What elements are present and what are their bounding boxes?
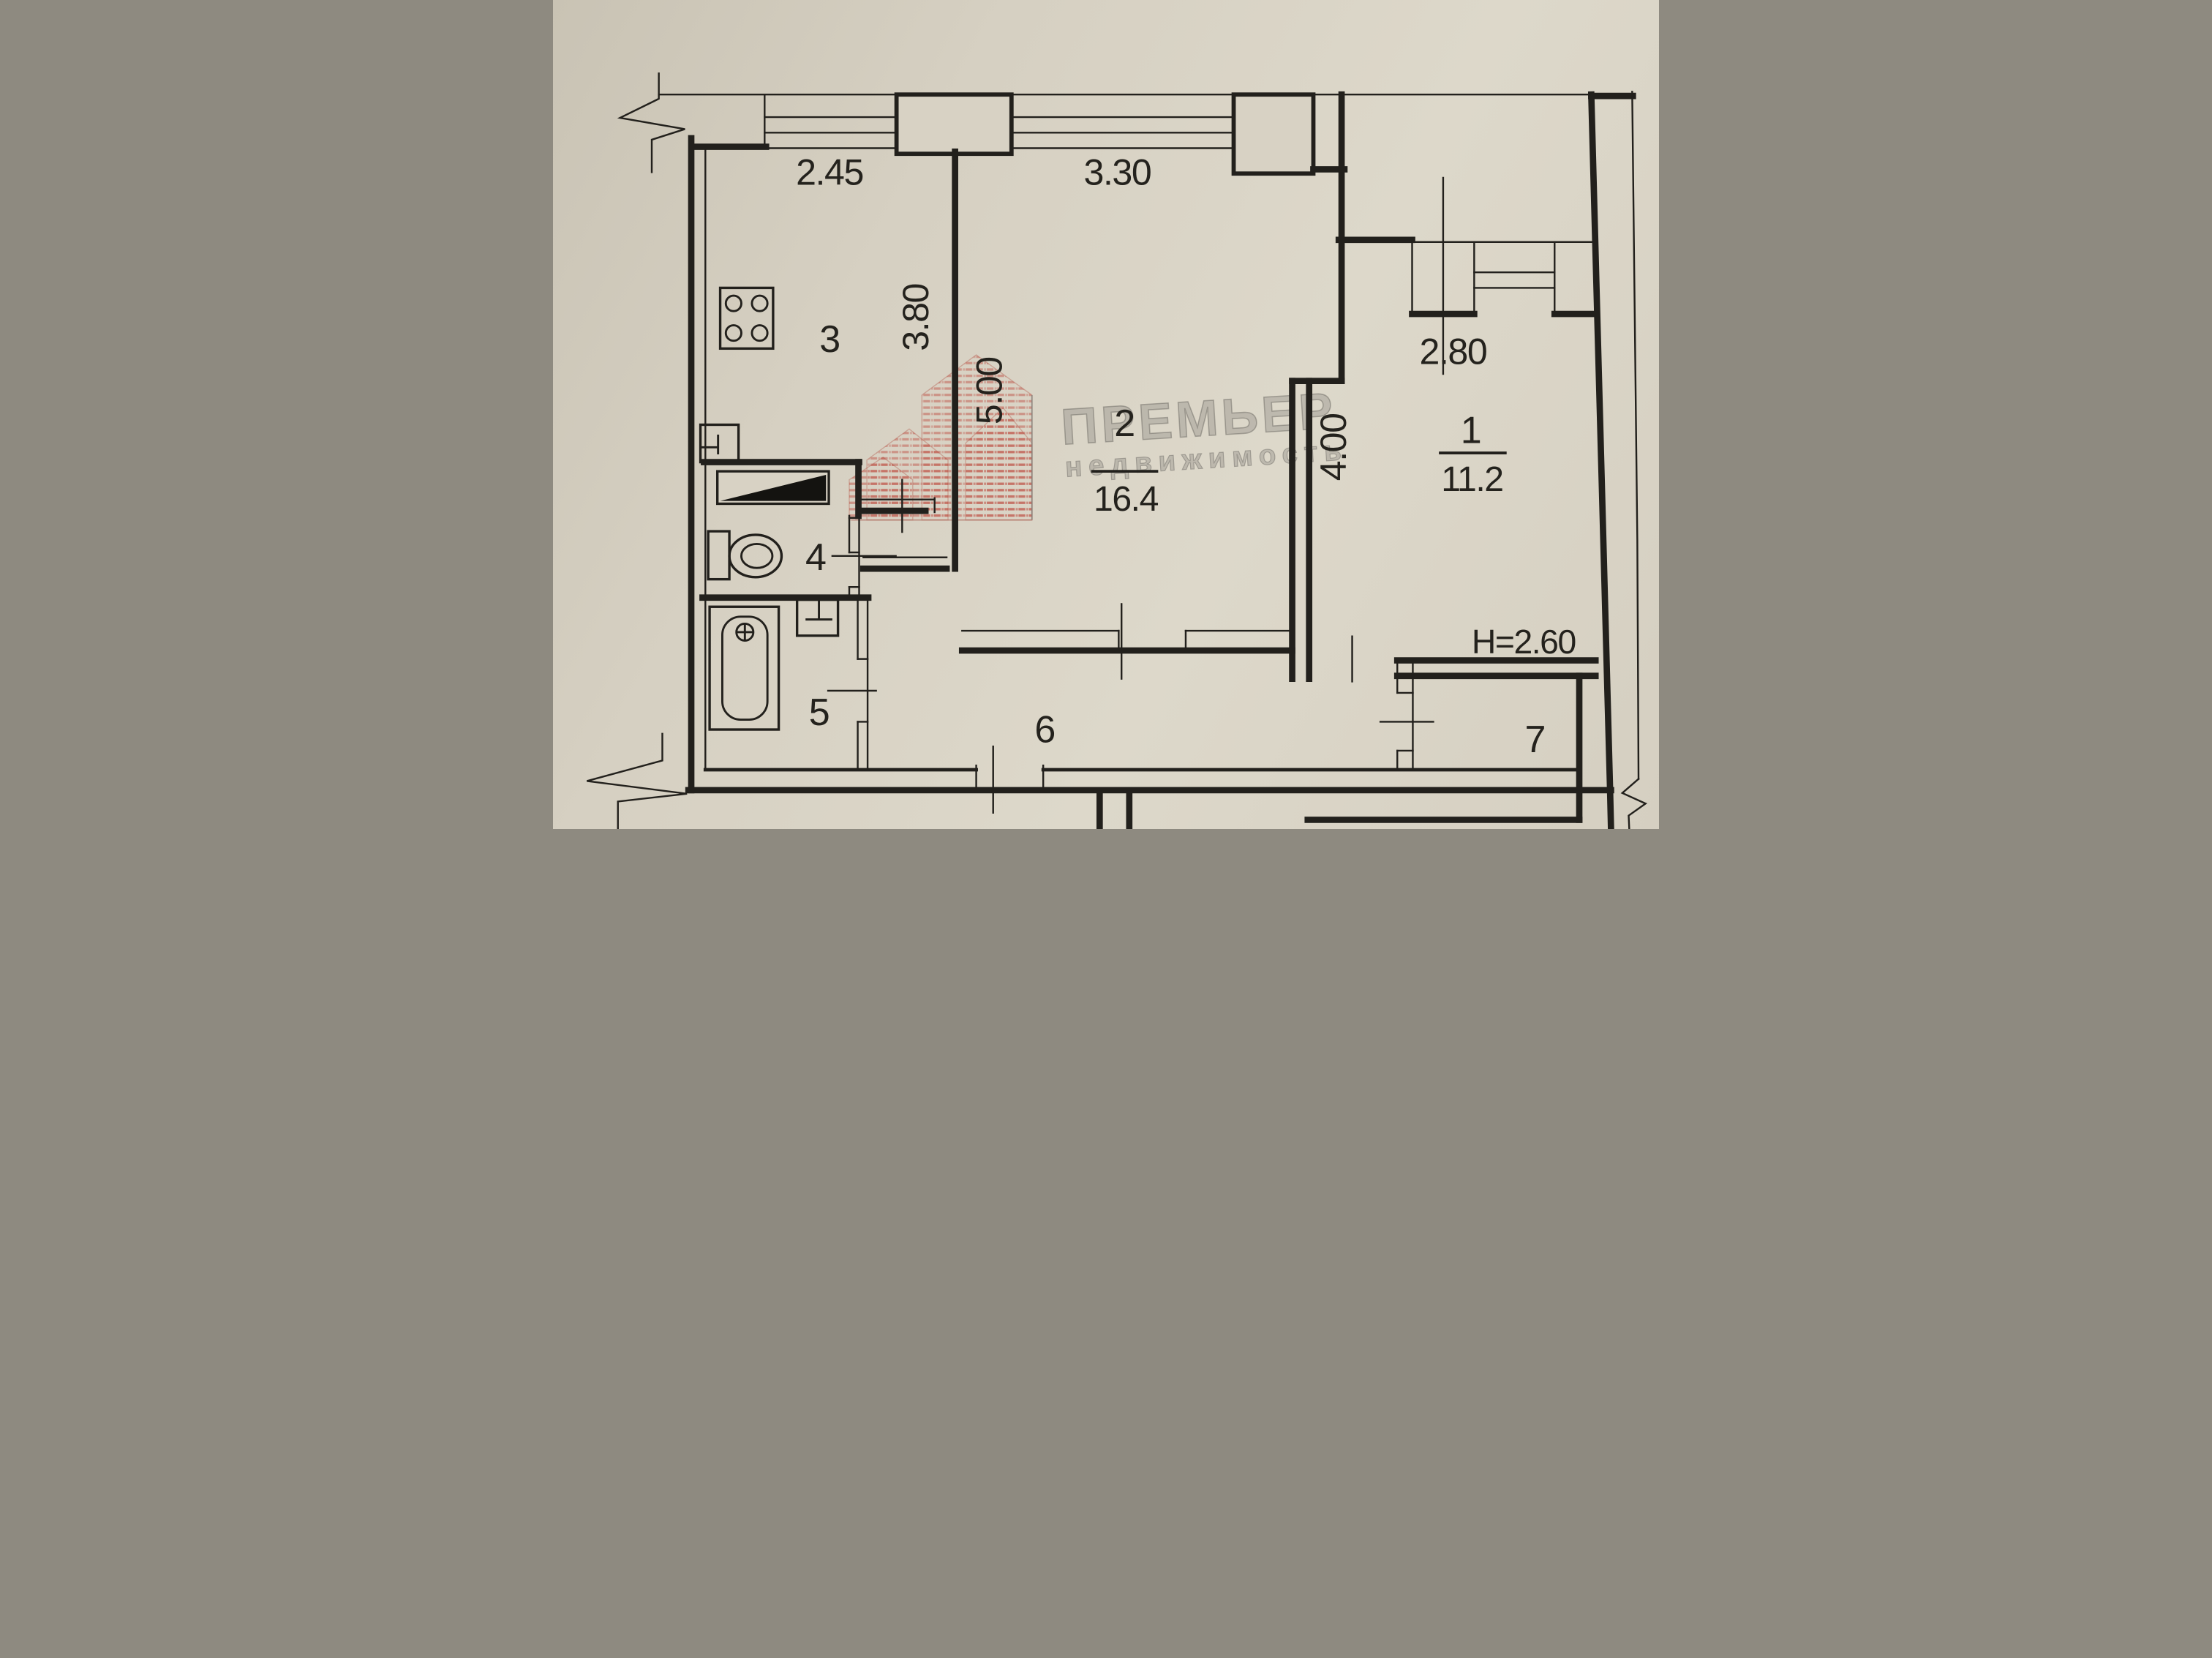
room2-number: 2 <box>1114 402 1135 445</box>
dim-kitchen-depth: 3.80 <box>895 284 936 351</box>
floor-plan-page: ПРЕМЬЕР недвижимость <box>553 0 1659 829</box>
storage-number: 7 <box>1525 719 1546 761</box>
kitchen-number: 3 <box>819 318 840 361</box>
fixtures <box>701 288 838 729</box>
bath-sink-icon <box>797 600 838 636</box>
bath-wall <box>828 598 876 770</box>
dim-room1-window: 2.80 <box>1420 331 1487 372</box>
room2-area: 16.4 <box>1094 479 1159 519</box>
stove-icon <box>721 288 773 348</box>
kitchen-window <box>764 94 896 148</box>
room2-bottom-wall <box>962 604 1292 678</box>
room1-number: 1 <box>1461 410 1481 452</box>
room1-top-wall <box>1339 240 1591 314</box>
room2-window <box>1012 117 1234 148</box>
bathtub-icon <box>710 607 778 729</box>
floor-plan-drawing: ПРЕМЬЕР недвижимость <box>553 0 1659 829</box>
bath-number: 5 <box>809 691 829 734</box>
wall-pier <box>897 94 1012 154</box>
wc-wall <box>832 516 896 598</box>
vent-shaft-icon <box>718 471 829 503</box>
toilet-icon <box>708 531 781 579</box>
dim-room2-window: 3.30 <box>1084 152 1151 193</box>
right-outer-wall-line <box>1632 91 1639 779</box>
dim-room1-depth: 4.00 <box>1313 413 1354 481</box>
hall-number: 6 <box>1034 708 1055 751</box>
right-outer-wall <box>1591 94 1611 829</box>
wall-break-icon <box>620 73 685 172</box>
wall-pier <box>1234 94 1314 173</box>
dim-kitchen-window: 2.45 <box>796 152 863 193</box>
wall-break-icon <box>587 734 687 829</box>
room1-area: 11.2 <box>1441 459 1502 499</box>
wc-number: 4 <box>805 536 826 579</box>
dim-room2-depth: 5.00 <box>968 357 1009 424</box>
room1-window <box>1474 242 1554 314</box>
ceiling-height-label: H=2.60 <box>1472 623 1576 661</box>
wall-break-icon <box>1622 779 1646 829</box>
